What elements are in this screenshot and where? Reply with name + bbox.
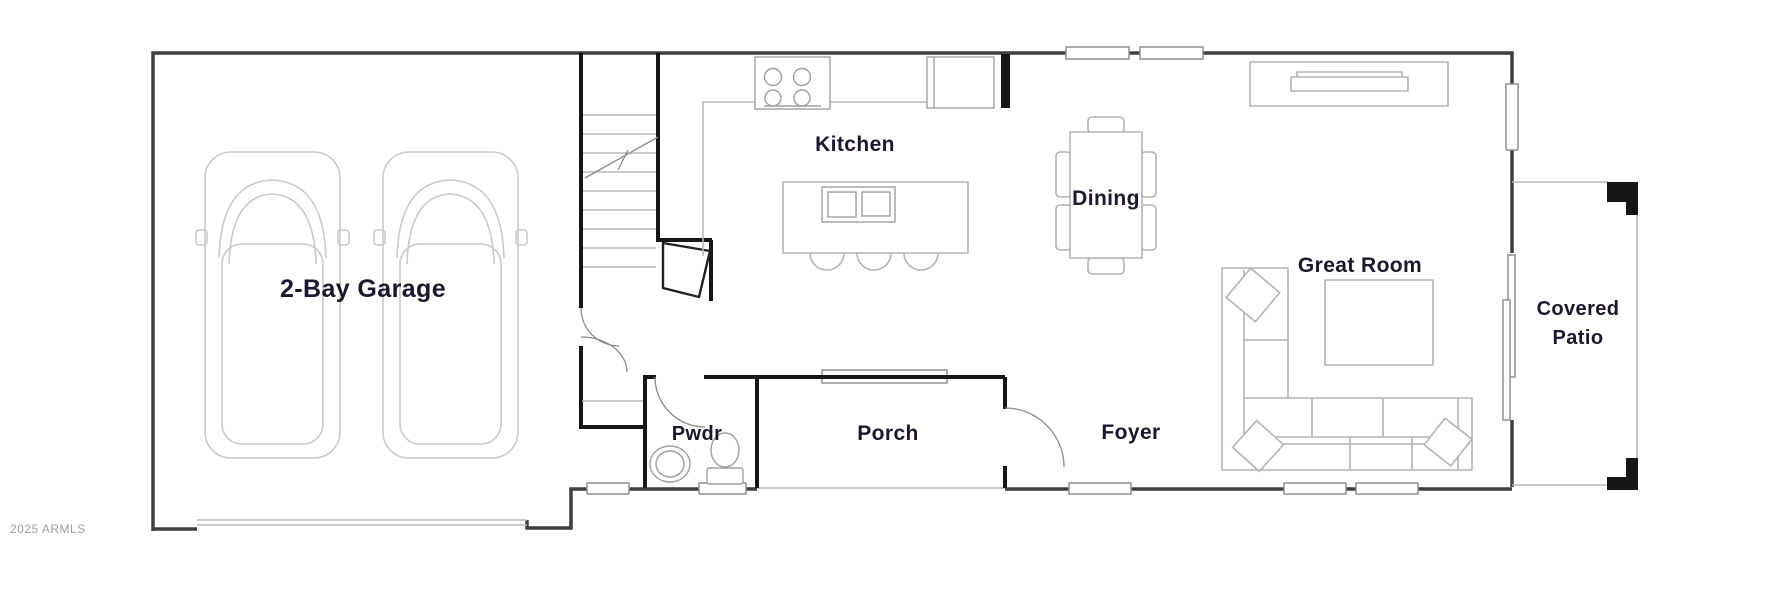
covered-patio: Covered Patio: [1503, 182, 1638, 490]
dining-room: Dining: [1056, 117, 1156, 274]
patio-post: [1607, 182, 1638, 215]
kitchen-island: [783, 182, 968, 270]
window: [1066, 47, 1129, 59]
dining-chair: [1141, 205, 1156, 250]
floor-plan: 2-Bay Garage: [0, 0, 1781, 600]
sectional-sofa: [1222, 268, 1472, 471]
wall-bottom: [527, 489, 1512, 528]
sink-icon: [650, 446, 690, 482]
window: [1356, 483, 1418, 494]
armls-watermark: 2025 ARMLS: [10, 522, 86, 536]
powder-room: Pwdr: [645, 375, 757, 488]
patio-post: [1607, 458, 1638, 490]
pillow-icon: [1226, 268, 1280, 322]
pillow-icon: [1233, 421, 1284, 472]
garage-door: [197, 520, 527, 525]
dining-chair: [1088, 117, 1124, 133]
stove-icon: [755, 57, 830, 109]
foyer-label: Foyer: [1101, 421, 1160, 444]
media-console: [1250, 62, 1448, 106]
window: [1140, 47, 1203, 59]
garage-label: 2-Bay Garage: [280, 275, 446, 303]
dining-chair: [1088, 258, 1124, 274]
stool-icon: [904, 253, 938, 270]
dining-chair: [1141, 152, 1156, 197]
window: [1506, 84, 1518, 150]
stool-icon: [857, 253, 891, 270]
window: [1284, 483, 1346, 494]
great-room: Great Room: [1222, 62, 1472, 471]
porch-area: Porch Foyer: [757, 377, 1161, 488]
staircase: [579, 53, 712, 427]
window: [587, 483, 629, 494]
fridge-icon: [927, 57, 994, 108]
kitchen-room: Kitchen: [703, 54, 1010, 270]
covered-patio-label-line2: Patio: [1553, 327, 1604, 349]
floor-plan-canvas: 2-Bay Garage: [0, 0, 1781, 600]
garage-room: 2-Bay Garage: [196, 152, 527, 458]
window: [1069, 483, 1131, 494]
coffee-table: [1325, 280, 1433, 365]
kitchen-label: Kitchen: [815, 133, 895, 156]
stool-icon: [810, 253, 844, 270]
covered-patio-label-line1: Covered: [1537, 298, 1620, 320]
car-icon: [374, 152, 527, 458]
tv-icon: [1291, 72, 1408, 91]
kitchen-wall-stub: [1001, 54, 1010, 108]
front-door-arc: [1005, 408, 1064, 467]
sliding-door: [1503, 255, 1515, 420]
dining-chair: [1056, 205, 1071, 250]
great-room-label: Great Room: [1298, 254, 1422, 277]
dining-label: Dining: [1072, 187, 1140, 210]
dining-chair: [1056, 152, 1071, 197]
powder-label: Pwdr: [672, 423, 723, 445]
porch-label: Porch: [857, 422, 919, 445]
car-icon: [196, 152, 349, 458]
pillow-icon: [1424, 418, 1472, 466]
powder-door-arc: [655, 377, 705, 427]
stair-treads: [583, 115, 656, 267]
closet-door-arc: [581, 337, 627, 372]
